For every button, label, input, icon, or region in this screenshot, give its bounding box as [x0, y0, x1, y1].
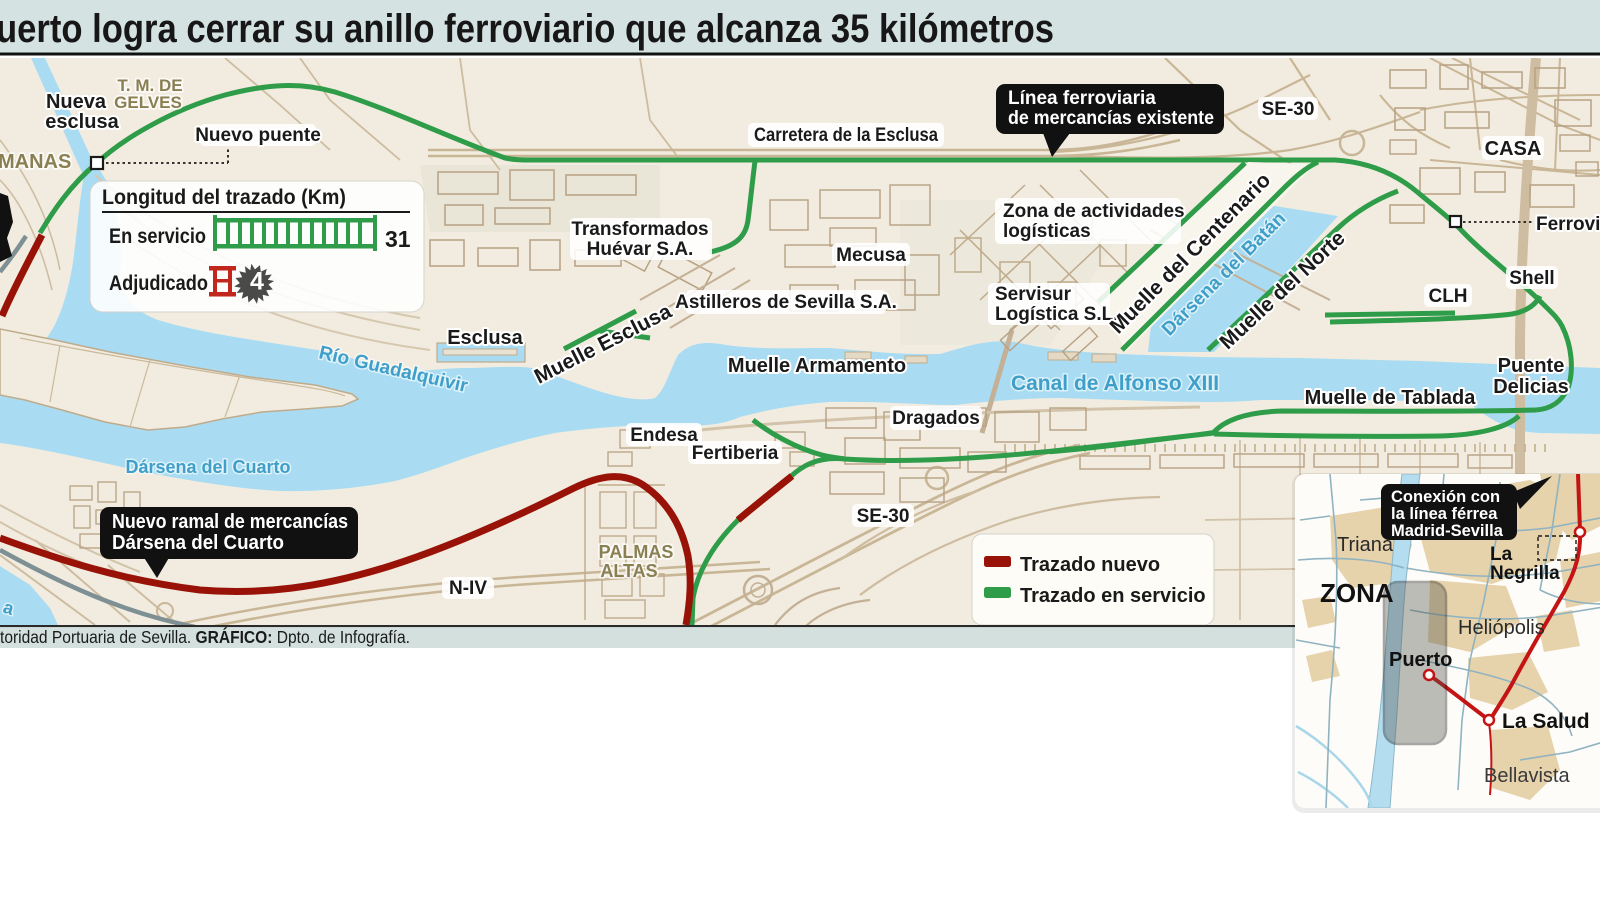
svg-text:MANAS: MANAS	[0, 151, 71, 173]
svg-text:N-IV: N-IV	[449, 578, 487, 599]
svg-text:Puerto: Puerto	[1389, 649, 1452, 671]
svg-text:Fertiberia: Fertiberia	[692, 443, 779, 464]
svg-text:Dársena del Cuarto: Dársena del Cuarto	[112, 532, 284, 554]
svg-text:Muelle Armamento: Muelle Armamento	[728, 355, 906, 377]
svg-text:Adjudicado: Adjudicado	[109, 272, 208, 295]
svg-text:Longitud del trazado (Km): Longitud del trazado (Km)	[102, 186, 346, 209]
svg-text:Muelle de Tablada: Muelle de Tablada	[1305, 387, 1477, 409]
svg-text:la línea férrea: la línea férrea	[1391, 505, 1498, 523]
svg-text:Trazado nuevo: Trazado nuevo	[1020, 554, 1160, 576]
svg-text:SE-30: SE-30	[857, 506, 910, 527]
svg-text:CASA: CASA	[1485, 138, 1542, 160]
svg-text:La: La	[1490, 544, 1513, 565]
svg-text:Madrid-Sevilla: Madrid-Sevilla	[1391, 522, 1504, 540]
svg-text:Heliópolis: Heliópolis	[1458, 617, 1545, 639]
svg-text:Línea ferroviaria: Línea ferroviaria	[1008, 88, 1156, 109]
svg-text:Carretera de la Esclusa: Carretera de la Esclusa	[754, 125, 938, 146]
svg-text:PALMAS: PALMAS	[599, 542, 674, 562]
svg-text:Esclusa: Esclusa	[447, 327, 523, 349]
svg-text:de mercancías existente: de mercancías existente	[1008, 108, 1214, 129]
svg-text:Dársena del Cuarto: Dársena del Cuarto	[125, 457, 290, 477]
svg-text:esclusa: esclusa	[45, 111, 119, 133]
svg-text:Logística S.L.: Logística S.L.	[995, 304, 1119, 325]
svg-text:Canal de Alfonso XIII: Canal de Alfonso XIII	[1011, 372, 1219, 395]
svg-text:Nuevo puente: Nuevo puente	[195, 125, 321, 146]
svg-text:Servisur: Servisur	[995, 284, 1072, 305]
svg-text:Ferrovial: Ferrovial	[1536, 214, 1600, 235]
svg-text:Shell: Shell	[1509, 268, 1554, 289]
svg-text:Transformados: Transformados	[571, 219, 708, 240]
svg-text:Dragados: Dragados	[892, 408, 980, 429]
svg-text:Trazado en servicio: Trazado en servicio	[1020, 585, 1206, 607]
svg-text:ZONA: ZONA	[1320, 578, 1394, 608]
svg-text:Zona de actividades: Zona de actividades	[1003, 201, 1185, 222]
svg-text:Astilleros de Sevilla S.A.: Astilleros de Sevilla S.A.	[675, 292, 897, 313]
svg-text:logísticas: logísticas	[1003, 221, 1091, 242]
svg-text:SE-30: SE-30	[1262, 99, 1315, 120]
svg-text:Huévar S.A.: Huévar S.A.	[587, 239, 694, 260]
svg-text:Puente: Puente	[1498, 355, 1565, 377]
svg-text:La Salud: La Salud	[1502, 710, 1590, 733]
svg-text:ALTAS: ALTAS	[600, 561, 657, 581]
svg-text:En servicio: En servicio	[109, 225, 206, 248]
svg-text:Nueva: Nueva	[46, 91, 107, 113]
svg-text:toridad Portuaria de Sevilla.: toridad Portuaria de Sevilla. GRÁFICO: D…	[0, 626, 410, 647]
svg-text:Bellavista: Bellavista	[1484, 765, 1570, 787]
svg-text:Endesa: Endesa	[630, 425, 698, 446]
svg-text:4: 4	[250, 268, 264, 296]
svg-text:Nuevo ramal de mercancías: Nuevo ramal de mercancías	[112, 511, 348, 533]
svg-text:Mecusa: Mecusa	[836, 245, 906, 266]
svg-text:GELVES: GELVES	[114, 93, 182, 112]
svg-text:Negrilla: Negrilla	[1490, 563, 1560, 584]
svg-text:31: 31	[385, 226, 411, 252]
svg-text:Conexión con: Conexión con	[1391, 488, 1500, 506]
svg-text:CLH: CLH	[1428, 286, 1467, 307]
svg-text:uerto logra cerrar su anillo f: uerto logra cerrar su anillo ferroviario…	[0, 7, 1054, 51]
svg-text:Delicias: Delicias	[1493, 376, 1569, 398]
